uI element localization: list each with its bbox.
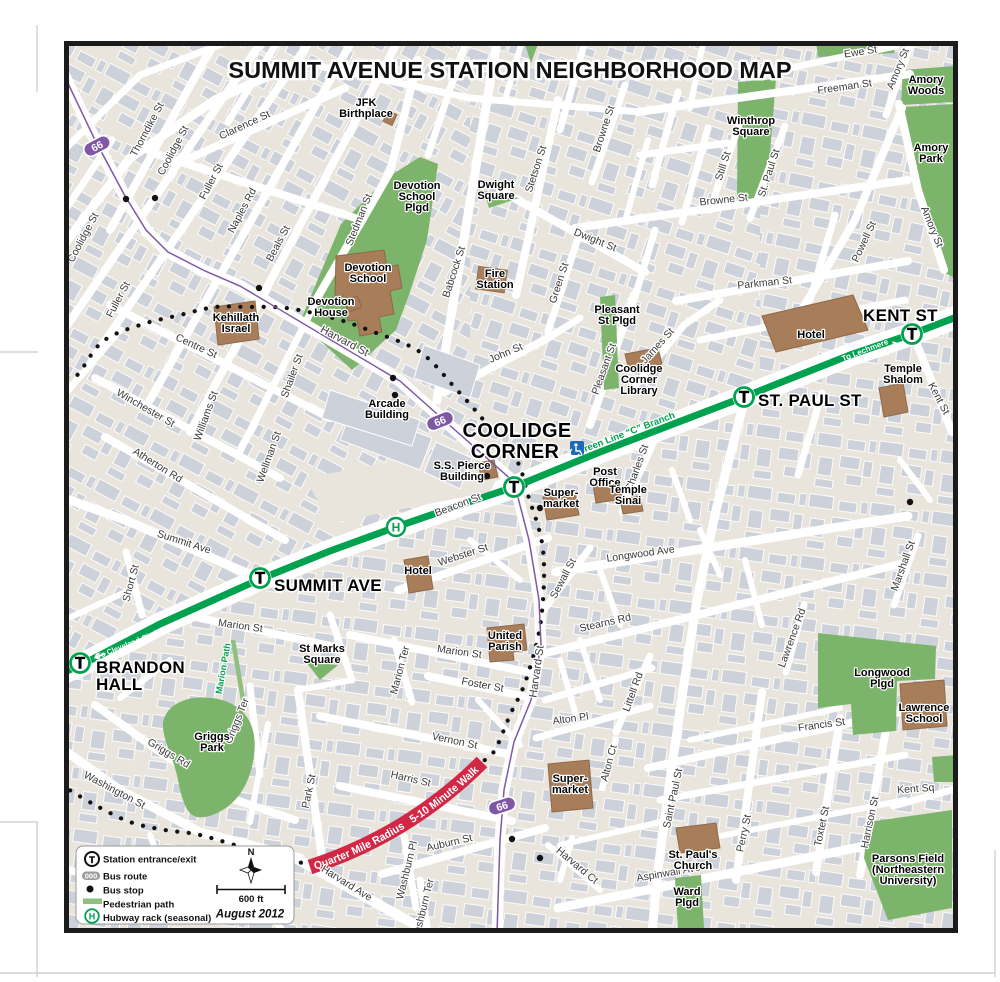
svg-text:Parish: Parish: [488, 641, 522, 653]
svg-text:SUMMIT AVENUE STATION NEIGHBOR: SUMMIT AVENUE STATION NEIGHBORHOOD MAP: [228, 57, 791, 83]
svg-text:Bus stop: Bus stop: [103, 886, 144, 897]
svg-text:H: H: [392, 521, 401, 535]
svg-text:Shalom: Shalom: [883, 374, 923, 386]
svg-text:Hotel: Hotel: [404, 565, 432, 577]
svg-text:N: N: [248, 847, 255, 858]
svg-text:Park: Park: [919, 153, 944, 165]
svg-text:Square: Square: [732, 126, 769, 138]
svg-text:T: T: [89, 855, 95, 866]
svg-text:Station: Station: [476, 279, 514, 291]
svg-text:Plgd: Plgd: [405, 202, 429, 214]
svg-text:School: School: [350, 273, 387, 285]
svg-text:market: market: [543, 498, 579, 510]
svg-text:ST. PAUL ST: ST. PAUL ST: [758, 391, 862, 410]
svg-text:T: T: [907, 326, 917, 344]
svg-text:T: T: [509, 479, 519, 497]
svg-text:600 ft: 600 ft: [239, 894, 265, 905]
svg-text:market: market: [552, 784, 588, 796]
svg-text:Building: Building: [440, 471, 484, 483]
svg-text:Church: Church: [674, 860, 713, 872]
svg-text:Pedestrian path: Pedestrian path: [103, 900, 174, 911]
svg-text:Building: Building: [365, 409, 409, 421]
svg-text:Station entrance/exit: Station entrance/exit: [103, 855, 197, 866]
svg-text:T: T: [255, 570, 265, 588]
svg-text:Square: Square: [303, 654, 340, 666]
svg-text:T: T: [739, 389, 749, 407]
svg-text:Woods: Woods: [908, 85, 944, 97]
svg-text:H: H: [89, 912, 96, 922]
svg-text:CORNER: CORNER: [471, 441, 560, 463]
svg-text:Library: Library: [620, 385, 658, 397]
svg-text:Plgd: Plgd: [870, 678, 894, 690]
svg-text:Park: Park: [200, 742, 225, 754]
svg-text:000: 000: [85, 871, 98, 880]
svg-text:HALL: HALL: [96, 675, 143, 694]
svg-text:Birthplace: Birthplace: [339, 108, 393, 120]
svg-text:SUMMIT AVE: SUMMIT AVE: [274, 576, 382, 595]
svg-text:House: House: [314, 307, 348, 319]
svg-text:School: School: [906, 713, 943, 725]
svg-text:KENT ST: KENT ST: [863, 306, 938, 325]
svg-text:T: T: [75, 655, 85, 673]
svg-text:Israel: Israel: [222, 323, 251, 335]
svg-text:Plgd: Plgd: [675, 897, 699, 909]
svg-text:Sinai: Sinai: [615, 495, 641, 507]
svg-text:Square: Square: [477, 190, 514, 202]
svg-text:August 2012: August 2012: [215, 909, 285, 921]
svg-text:Hubway rack (seasonal): Hubway rack (seasonal): [103, 913, 211, 924]
svg-text:Bus route: Bus route: [103, 872, 147, 883]
svg-text:Hotel: Hotel: [797, 329, 825, 341]
svg-text:COOLIDGE: COOLIDGE: [462, 420, 571, 442]
svg-text:University): University): [880, 875, 937, 887]
svg-text:St Plgd: St Plgd: [598, 315, 636, 327]
